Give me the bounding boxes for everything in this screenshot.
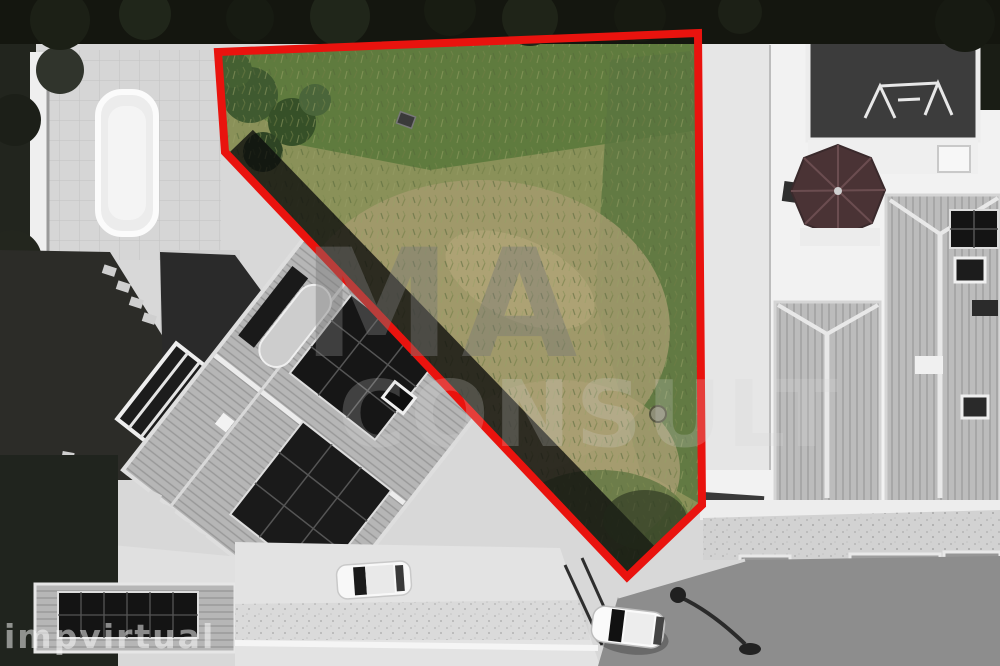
pool-water: [108, 106, 146, 220]
table-edge: [800, 228, 880, 246]
watermark-corner: impvirtual: [4, 617, 215, 656]
patio-umbrella: [791, 145, 885, 237]
aerial-photo: MA CONSULT impvirtual: [0, 0, 1000, 666]
tree-blob: [36, 46, 84, 94]
skylight: [955, 258, 985, 282]
parked-car: [336, 560, 412, 599]
aerial-photo-canvas: MA CONSULT impvirtual: [0, 0, 1000, 666]
right-house-roof-right: [886, 195, 1000, 505]
lawn-dark: [808, 34, 978, 140]
ac-unit: [938, 146, 970, 172]
roof-vent: [972, 300, 998, 316]
watermark-center-line2: CONSULT: [338, 361, 843, 468]
roof-valley-box: [915, 356, 943, 374]
skylight: [962, 396, 988, 418]
gravel-tint: [235, 600, 590, 640]
